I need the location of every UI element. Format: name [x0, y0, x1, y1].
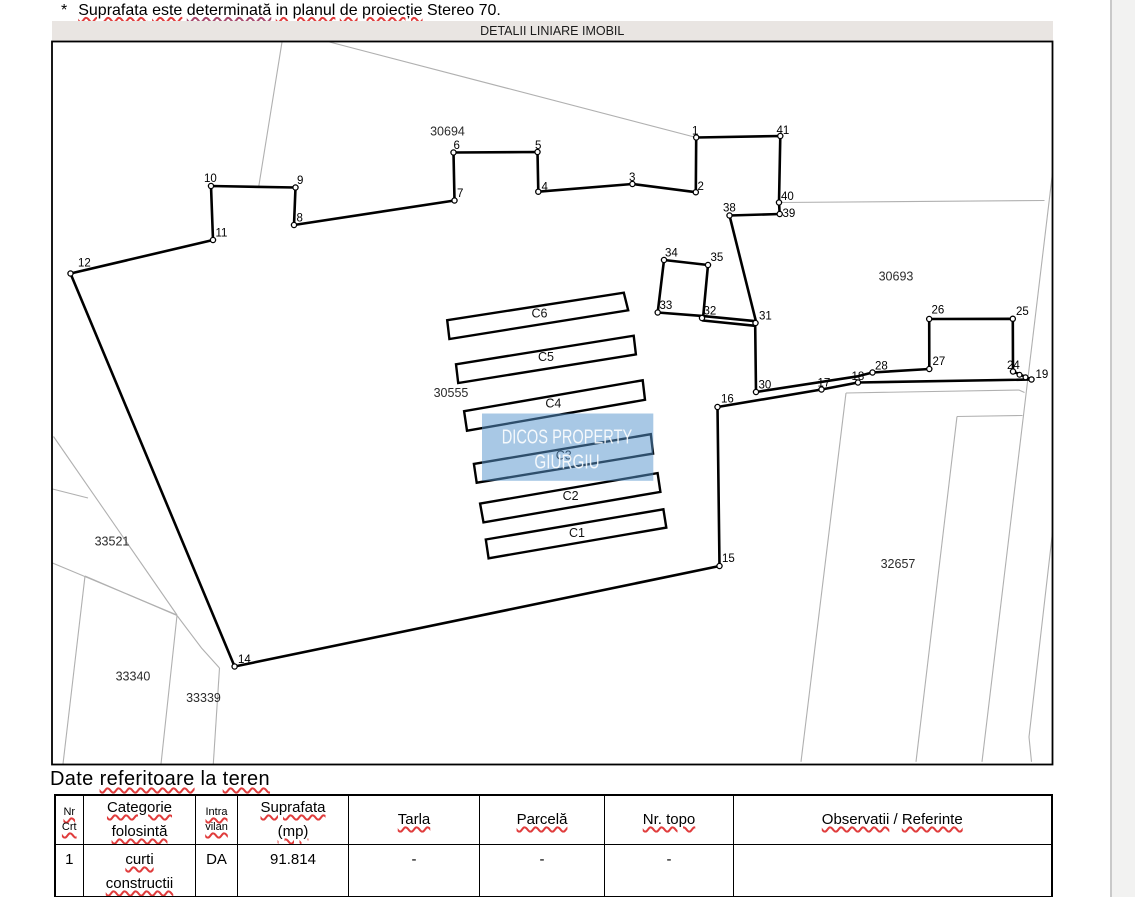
svg-text:17: 17	[818, 378, 831, 390]
svg-text:39: 39	[783, 208, 796, 220]
svg-text:30555: 30555	[434, 386, 469, 400]
svg-text:33: 33	[660, 300, 673, 312]
svg-text:C6: C6	[532, 307, 548, 321]
svg-text:25: 25	[1016, 306, 1029, 318]
svg-text:11: 11	[216, 228, 228, 240]
svg-text:6: 6	[454, 140, 460, 152]
svg-text:24: 24	[1007, 360, 1020, 372]
svg-text:28: 28	[875, 361, 888, 373]
svg-text:C4: C4	[545, 397, 561, 411]
svg-text:DICOS PROPERTY: DICOS PROPERTY	[502, 426, 633, 449]
svg-text:40: 40	[781, 191, 794, 203]
svg-text:14: 14	[238, 654, 251, 666]
svg-text:2: 2	[698, 181, 704, 193]
svg-text:32657: 32657	[881, 557, 916, 571]
svg-text:C2: C2	[563, 489, 579, 503]
svg-text:30694: 30694	[430, 125, 465, 139]
svg-text:8: 8	[297, 213, 303, 225]
svg-text:33340: 33340	[116, 670, 151, 684]
svg-text:41: 41	[777, 125, 790, 137]
svg-text:38: 38	[723, 203, 736, 215]
svg-text:5: 5	[535, 140, 541, 152]
svg-text:26: 26	[932, 305, 945, 317]
svg-text:30: 30	[759, 380, 772, 392]
svg-text:C1: C1	[569, 526, 585, 540]
svg-text:C5: C5	[538, 350, 554, 364]
svg-text:15: 15	[722, 553, 735, 565]
svg-text:GIURGIU: GIURGIU	[534, 451, 599, 474]
svg-text:27: 27	[933, 356, 946, 368]
svg-text:18: 18	[852, 371, 865, 383]
svg-text:1: 1	[692, 126, 698, 138]
svg-text:10: 10	[204, 173, 217, 185]
svg-text:30693: 30693	[879, 270, 914, 284]
svg-text:3: 3	[629, 172, 635, 184]
svg-text:16: 16	[721, 394, 734, 406]
svg-text:33339: 33339	[186, 691, 221, 705]
svg-text:12: 12	[78, 258, 91, 270]
svg-text:19: 19	[1036, 369, 1049, 381]
svg-text:4: 4	[542, 182, 549, 194]
svg-text:35: 35	[711, 252, 724, 264]
svg-text:34: 34	[665, 248, 678, 260]
svg-text:9: 9	[297, 175, 303, 187]
svg-text:32: 32	[704, 306, 717, 318]
svg-text:31: 31	[759, 311, 772, 323]
svg-text:7: 7	[457, 188, 463, 200]
svg-text:33521: 33521	[95, 535, 130, 549]
